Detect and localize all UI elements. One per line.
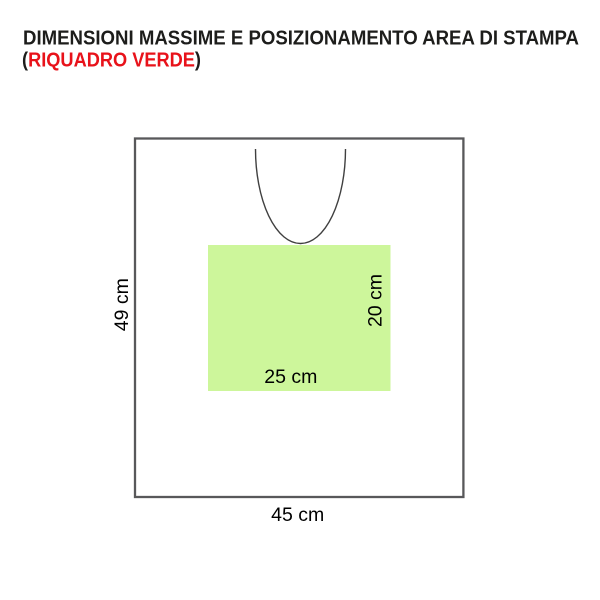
svg-text:(RIQUADRO VERDE): (RIQUADRO VERDE) xyxy=(22,50,201,72)
svg-text:25 cm: 25 cm xyxy=(264,366,317,388)
svg-text:49 cm: 49 cm xyxy=(111,278,133,331)
svg-text:DIMENSIONI MASSIME E POSIZIONA: DIMENSIONI MASSIME E POSIZIONAMENTO AREA… xyxy=(23,28,579,50)
svg-text:20 cm: 20 cm xyxy=(365,274,387,327)
svg-text:45 cm: 45 cm xyxy=(271,504,324,526)
